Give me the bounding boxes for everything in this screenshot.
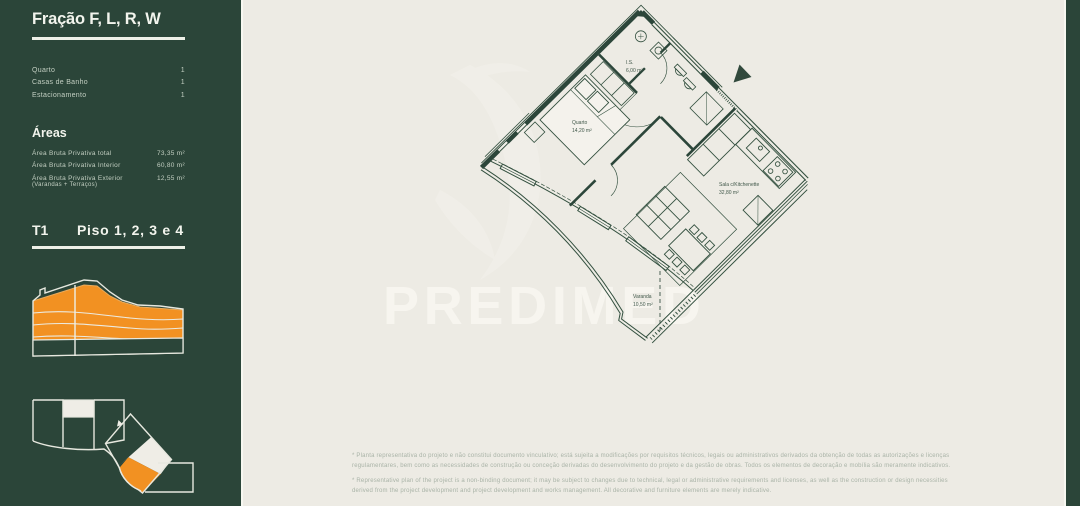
svg-text:Varanda: Varanda [633, 294, 652, 300]
svg-text:14,20 m²: 14,20 m² [572, 128, 592, 134]
svg-text:Quarto: Quarto [572, 120, 588, 126]
svg-text:6,00 m²: 6,00 m² [626, 68, 643, 74]
svg-text:Sala c/Kitchenette: Sala c/Kitchenette [719, 182, 760, 188]
svg-text:I.S.: I.S. [626, 60, 634, 66]
svg-text:32,80 m²: 32,80 m² [719, 190, 739, 196]
svg-text:10,50 m²: 10,50 m² [633, 302, 653, 308]
